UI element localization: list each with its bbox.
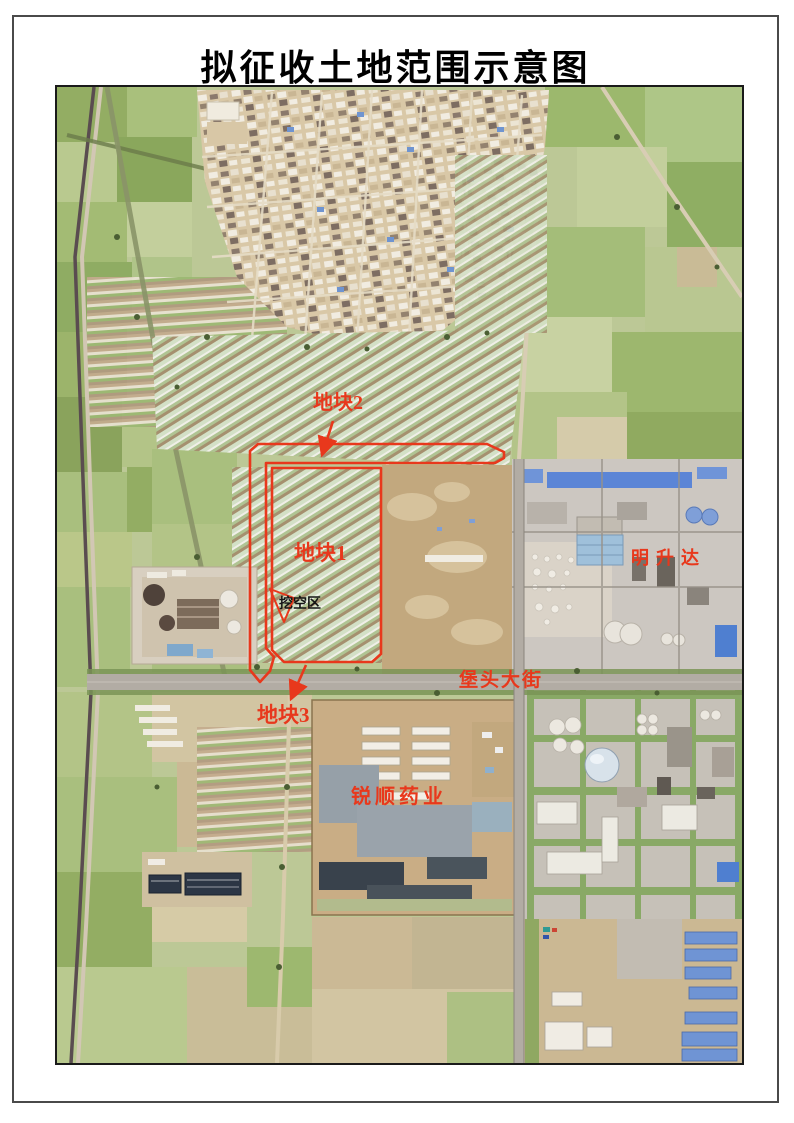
label-parcel3: 地块3	[257, 705, 310, 726]
industrial-plant-southeast	[519, 689, 742, 919]
label-street: 堡头大街	[459, 671, 543, 690]
label-parcel2: 地块2	[313, 393, 363, 413]
water-treatment-plant	[132, 567, 257, 664]
label-company-northeast: 明升达	[631, 549, 706, 567]
bare-dirt-parcel	[382, 465, 512, 675]
bottom-right-zone	[519, 919, 742, 1063]
satellite-map	[57, 87, 742, 1063]
map-frame: 地块2 地块1 挖空区 地块3 明升达 堡头大街 锐顺药业	[55, 85, 744, 1065]
industrial-plant-northeast	[512, 459, 742, 675]
label-parcel1: 地块1	[294, 543, 347, 564]
dark-sheds	[142, 852, 252, 907]
page-border: 拟征收土地范围示意图	[12, 15, 779, 1103]
label-excavation-zone: 挖空区	[279, 598, 321, 612]
label-company-south: 锐顺药业	[351, 787, 447, 807]
page-title: 拟征收土地范围示意图	[14, 39, 777, 91]
document-page: 拟征收土地范围示意图	[0, 0, 794, 1123]
